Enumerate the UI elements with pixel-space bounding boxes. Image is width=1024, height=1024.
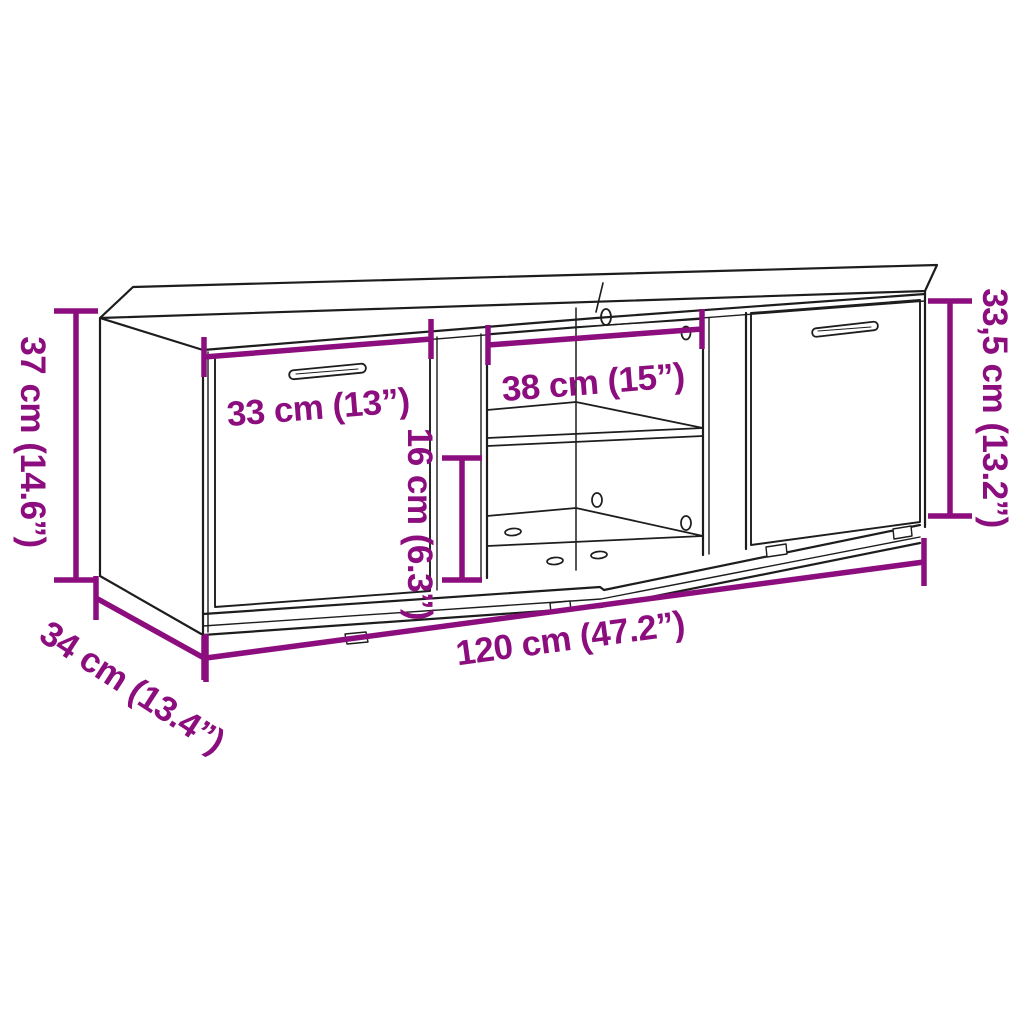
middle-shelf [487,402,703,446]
left-door-handle [289,363,367,379]
dimension-label-compartment-width: 38 cm (15”) [500,356,686,409]
dimension-label-depth: 34 cm (13.4”) [33,613,232,761]
left-side-panel [100,318,203,635]
dimension-label-height-left: 37 cm (14.6”) [13,336,52,547]
dimension-line-height-right [928,301,972,516]
dimension-labels: 37 cm (14.6”) 33 cm (13”) 38 cm (15”) 16… [13,288,1014,761]
right-door [751,300,920,545]
tv-cabinet-dimension-diagram: 37 cm (14.6”) 33 cm (13”) 38 cm (15”) 16… [0,0,1024,1024]
cabinet-line-art [100,265,937,644]
dimension-label-height-right: 33,5 cm (13.2”) [975,288,1014,528]
dimension-line-height-left [54,311,98,580]
dimension-line-compartment-height [442,458,482,580]
right-door-handle [812,321,879,337]
dimension-label-door-width: 33 cm (13”) [225,381,411,434]
dimension-lines [54,301,972,682]
dimension-line-total-width [206,538,924,682]
cabinet-top-seam [596,283,603,312]
bottom-panel [487,508,703,546]
dimension-label-compartment-height: 16 cm (6.3”) [400,428,439,620]
diagram-canvas: 37 cm (14.6”) 33 cm (13”) 38 cm (15”) 16… [0,0,1024,1024]
left-door [215,338,430,607]
